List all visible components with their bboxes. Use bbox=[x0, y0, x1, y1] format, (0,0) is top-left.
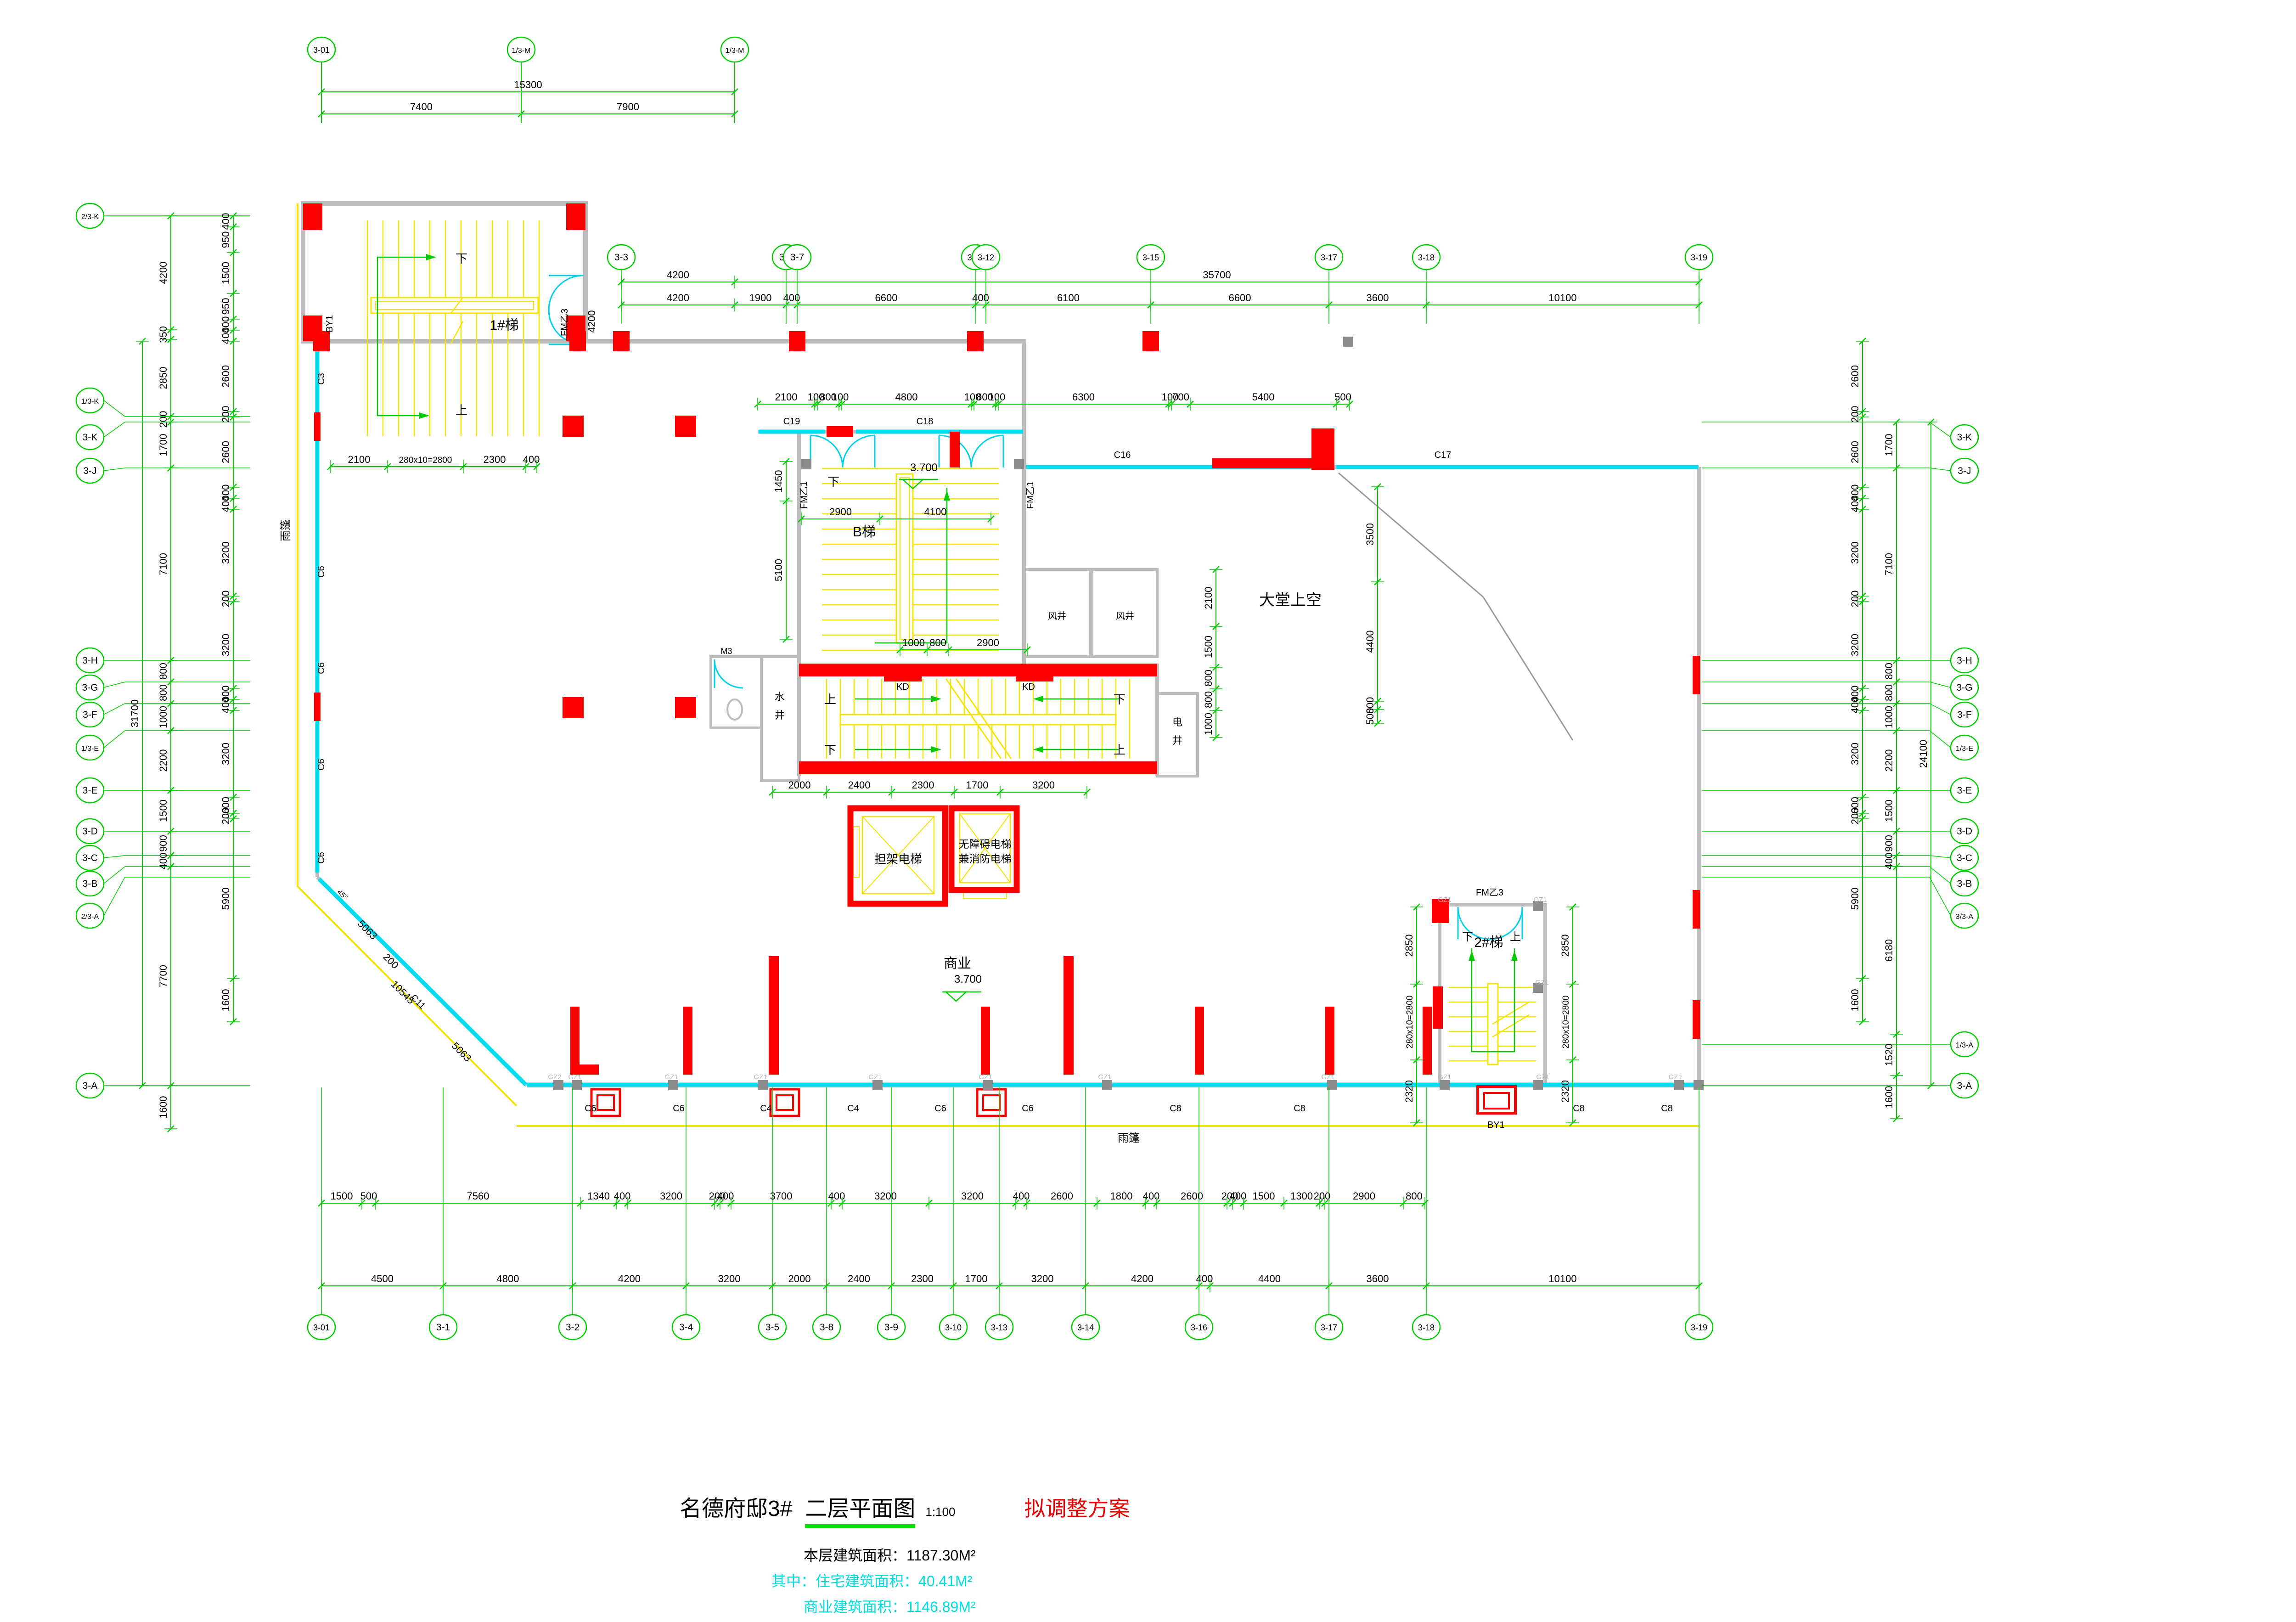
axis-line bbox=[1930, 422, 1951, 437]
red-column bbox=[1016, 666, 1053, 681]
dim-label: 200 bbox=[158, 411, 169, 428]
dim-label: 2300 bbox=[912, 779, 934, 791]
dim-label: 1000 bbox=[1883, 706, 1895, 728]
area-resi-value: 40.41M² bbox=[918, 1573, 972, 1589]
axis-bubble-label: 3-18 bbox=[1418, 1323, 1435, 1332]
dim-label: 6300 bbox=[1072, 391, 1095, 403]
plan-label: 水 bbox=[775, 691, 785, 703]
plan-label: C6 bbox=[1022, 1104, 1034, 1114]
dim-label: 2600 bbox=[1849, 441, 1861, 463]
red-column bbox=[683, 1007, 692, 1075]
plan-label: M3 bbox=[720, 647, 732, 656]
dim-label: 200 bbox=[220, 406, 231, 423]
red-column bbox=[314, 412, 321, 441]
door-m3 bbox=[715, 659, 743, 688]
dim-label: 1700 bbox=[1883, 434, 1895, 456]
floorplan-page: { "title_block": { "project": "名德府邸3#", … bbox=[0, 0, 2296, 1622]
plan-label: C6 bbox=[316, 759, 326, 771]
dim-label: 3200 bbox=[874, 1190, 897, 1202]
plan-label: GZ1 bbox=[979, 1073, 992, 1081]
dim-label: 400 bbox=[220, 697, 231, 714]
axis-bubble-label: 3/3-A bbox=[1956, 913, 1974, 921]
title-block: 名德府邸3#二层平面图1:100拟调整方案 本层建筑面积：1187.30M² 其… bbox=[680, 1490, 1322, 1616]
gray-column bbox=[801, 459, 811, 469]
red-column bbox=[769, 956, 779, 1075]
red-column bbox=[789, 331, 805, 351]
axis-line bbox=[1930, 704, 1951, 715]
dim-label: 800 bbox=[1406, 1190, 1423, 1202]
dim-label: 800 bbox=[929, 637, 946, 648]
red-column bbox=[981, 1007, 990, 1075]
drawing-title: 二层平面图 bbox=[805, 1490, 915, 1528]
dim-label: 7700 bbox=[158, 965, 169, 987]
dim-label: 3200 bbox=[220, 634, 231, 656]
dim-label: 200 bbox=[1849, 808, 1861, 825]
red-column bbox=[563, 416, 584, 437]
level-value: 3.700 bbox=[910, 462, 938, 474]
dim-label: 400 bbox=[1230, 1190, 1247, 1202]
dim-label: 4800 bbox=[497, 1273, 519, 1284]
plan-label: C19 bbox=[783, 417, 800, 427]
canopy-left-line bbox=[298, 203, 517, 1106]
axis-bubble-label: 3-17 bbox=[1321, 1323, 1337, 1332]
axis-line bbox=[104, 856, 125, 858]
direction-arrowhead bbox=[419, 412, 429, 419]
axis-bubble-label: 3-16 bbox=[1191, 1323, 1207, 1332]
dim-label: 4200 bbox=[618, 1273, 641, 1284]
dim-label: 5900 bbox=[220, 888, 231, 910]
axis-line bbox=[104, 400, 125, 417]
axis-line bbox=[104, 468, 125, 471]
axis-bubble-label: 3-E bbox=[1957, 785, 1972, 796]
axis-bubble-label: 3-E bbox=[83, 785, 98, 796]
red-column bbox=[884, 666, 922, 681]
dim-label: 3200 bbox=[1849, 541, 1861, 564]
dim-label-extra: 200 bbox=[381, 951, 401, 971]
plan-label: 下 bbox=[827, 475, 839, 489]
axis-line bbox=[1930, 867, 1951, 884]
dim-label: 5400 bbox=[1252, 391, 1275, 403]
axis-bubble-label: 3-14 bbox=[1077, 1323, 1094, 1332]
plan-label: GZ1 bbox=[1438, 896, 1451, 904]
dim-label: 200 bbox=[220, 808, 231, 825]
red-column bbox=[570, 1007, 580, 1075]
plan-label: 井 bbox=[775, 710, 785, 721]
dim-label: 800 bbox=[1203, 670, 1214, 687]
dim-label: 400 bbox=[614, 1190, 631, 1202]
axis-bubble-label: 3-F bbox=[83, 710, 97, 720]
dim-label: 950 bbox=[220, 231, 231, 248]
plan-label: BY1 bbox=[1487, 1120, 1505, 1130]
dim-label: 1600 bbox=[1883, 1086, 1895, 1109]
dim-label: 2600 bbox=[1849, 365, 1861, 388]
dim-label: 280x10=2800 bbox=[399, 456, 452, 465]
plan-label: 雨篷 bbox=[280, 519, 292, 541]
plan-label: 担架电梯 bbox=[874, 852, 922, 866]
bstair-rail bbox=[896, 474, 913, 643]
axis-bubble-label: 3-18 bbox=[1418, 253, 1435, 262]
dim-label: 15300 bbox=[514, 79, 542, 90]
axis-bubble-label: 1/3-K bbox=[81, 398, 99, 405]
gray-column bbox=[668, 1080, 678, 1090]
dim-label: 1000 bbox=[158, 706, 169, 728]
plan-label: 井 bbox=[1172, 735, 1182, 746]
red-column bbox=[799, 761, 1157, 774]
dim-label: 2400 bbox=[848, 1273, 870, 1284]
plan-label: C3 bbox=[316, 373, 326, 385]
axis-line bbox=[104, 731, 125, 748]
direction-arrowhead bbox=[1511, 951, 1518, 961]
direction-arrowhead bbox=[944, 490, 950, 501]
dim-label: 2850 bbox=[158, 367, 169, 389]
dim-label: 7100 bbox=[1883, 553, 1895, 575]
red-column bbox=[1693, 1000, 1700, 1039]
plan-label: 1#梯 bbox=[490, 318, 518, 333]
dim-label: 4200 bbox=[667, 269, 689, 281]
plan-label: C18 bbox=[917, 417, 934, 427]
axis-bubble-label: 3-D bbox=[82, 826, 98, 837]
plan-label: GZ1 bbox=[1098, 1073, 1111, 1081]
dim-label: 200 bbox=[1849, 406, 1861, 423]
dim-label: 24100 bbox=[1918, 740, 1929, 768]
plan-label: 下 bbox=[1462, 931, 1473, 943]
plan-label: FM乙3 bbox=[1476, 888, 1503, 898]
plan-label: 电 bbox=[1172, 716, 1182, 728]
plan-label: C4 bbox=[760, 1104, 772, 1114]
red-column bbox=[675, 697, 696, 718]
dim-label: 6100 bbox=[1057, 292, 1080, 304]
red-column bbox=[1325, 1007, 1334, 1075]
dim-label: 1340 bbox=[587, 1190, 610, 1202]
axis-bubble-label: 1/3-E bbox=[1956, 745, 1973, 753]
dim-label: 1000 bbox=[902, 637, 925, 648]
plan-label: KD bbox=[896, 682, 909, 692]
plan-label: 风井 bbox=[1116, 611, 1134, 621]
dim-label: 1500 bbox=[220, 262, 231, 284]
plan-label: GZ1 bbox=[1668, 1073, 1682, 1081]
red-column bbox=[1693, 890, 1700, 929]
plan-label: 下 bbox=[1114, 693, 1125, 706]
dim-label: 400 bbox=[783, 292, 800, 304]
dim-label: 10100 bbox=[1548, 292, 1576, 304]
gray-column bbox=[1102, 1080, 1112, 1090]
dim-label: 2600 bbox=[1051, 1190, 1073, 1202]
dim-label: 1600 bbox=[1849, 989, 1861, 1012]
area-sub-prefix: 其中： bbox=[771, 1573, 816, 1589]
dim-label: 4500 bbox=[371, 1273, 394, 1284]
dim-label: 800 bbox=[1883, 663, 1895, 680]
dim-label: 900 bbox=[1883, 835, 1895, 852]
axis-bubble-label: 3-2 bbox=[566, 1322, 580, 1333]
gray-column bbox=[1343, 337, 1353, 347]
plan-label: 上 bbox=[1114, 743, 1125, 757]
axis-bubble-label: 3-C bbox=[82, 853, 98, 863]
plan-label: 下 bbox=[824, 743, 836, 757]
plan-label: 商业 bbox=[944, 956, 971, 971]
red-column bbox=[1142, 331, 1159, 351]
red-column bbox=[1195, 1007, 1204, 1075]
project-name: 名德府邸3# bbox=[680, 1497, 792, 1521]
dim-label: 7100 bbox=[158, 553, 169, 575]
axis-bubble-label: 3-13 bbox=[991, 1323, 1007, 1332]
dim-label: 1450 bbox=[773, 470, 784, 493]
plan-label: C6 bbox=[316, 852, 326, 864]
dim-label: 2300 bbox=[911, 1273, 934, 1284]
dim-label: 400 bbox=[717, 1190, 734, 1202]
plan-label: C6 bbox=[585, 1104, 597, 1114]
window-diagonal-c11 bbox=[319, 879, 526, 1085]
dim-label: 3200 bbox=[1032, 779, 1055, 791]
plan-label: GZ1 bbox=[1321, 1073, 1334, 1081]
dim-label: 4200 bbox=[1131, 1273, 1154, 1284]
plan-label: 兼消防电梯 bbox=[959, 853, 1012, 865]
dim-label: 2850 bbox=[1559, 935, 1571, 957]
red-column bbox=[303, 315, 322, 341]
axis-bubble-label: 3-8 bbox=[820, 1322, 833, 1333]
plan-label: BY1 bbox=[325, 315, 335, 332]
dim-label: 400 bbox=[1196, 1273, 1213, 1284]
dim-label: 2600 bbox=[220, 365, 231, 388]
plan-label: C6 bbox=[316, 566, 326, 578]
red-column bbox=[1212, 458, 1313, 468]
axis-bubble-label: 2/3-K bbox=[81, 213, 99, 221]
dim-label: 4100 bbox=[924, 506, 947, 518]
axis-bubble-label: 3-K bbox=[83, 432, 98, 443]
dim-label: 2400 bbox=[848, 779, 871, 791]
elev1-cw bbox=[853, 827, 859, 877]
axis-bubble-label: 1/3-M bbox=[512, 47, 531, 55]
plan-label: GZ1 bbox=[1438, 1073, 1451, 1081]
axis-line bbox=[1930, 877, 1951, 916]
red-column bbox=[967, 331, 984, 351]
area-total-label: 本层建筑面积： bbox=[804, 1547, 906, 1564]
plan-label: GZ1 bbox=[664, 1073, 678, 1081]
dim-label: 2300 bbox=[484, 454, 506, 465]
level-value: 3.700 bbox=[954, 973, 982, 986]
dim-label: 900 bbox=[158, 835, 169, 852]
axis-bubble-label: 3-K bbox=[1957, 432, 1972, 443]
dim-label: 2100 bbox=[1203, 587, 1214, 609]
red-column bbox=[613, 331, 630, 351]
dim-label: 3500 bbox=[1364, 523, 1376, 546]
axis-bubble-label: 3-J bbox=[83, 466, 96, 476]
dim-label: 400 bbox=[1883, 853, 1895, 870]
plan-label: C8 bbox=[1170, 1104, 1182, 1114]
dim-label: 2320 bbox=[1403, 1080, 1415, 1103]
direction-arrowhead bbox=[426, 254, 436, 260]
axis-bubble-label: 3-1 bbox=[436, 1322, 450, 1333]
dim-label: 4400 bbox=[1364, 631, 1376, 653]
axis-bubble-label: 3-3 bbox=[614, 252, 628, 263]
dim-label: 280x10=2800 bbox=[1561, 996, 1571, 1049]
dim-label: 6180 bbox=[1883, 939, 1895, 962]
axis-line bbox=[104, 682, 125, 687]
dim-label: 4200 bbox=[158, 262, 169, 284]
dim-label: 400 bbox=[220, 327, 231, 344]
dim-label: 2600 bbox=[220, 441, 231, 463]
axis-bubble-label: 3-4 bbox=[679, 1322, 693, 1333]
dim-label: 950 bbox=[220, 298, 231, 315]
gray-column bbox=[1014, 459, 1024, 469]
dim-label: 3200 bbox=[718, 1273, 741, 1284]
dim-label: 400 bbox=[1013, 1190, 1030, 1202]
axis-bubble-label: 3-H bbox=[82, 655, 98, 666]
dim-label: 3200 bbox=[961, 1190, 984, 1202]
axis-line bbox=[1930, 731, 1951, 748]
axis-bubble-label: 3-10 bbox=[945, 1323, 962, 1332]
axis-bubble-label: 3-G bbox=[1956, 682, 1972, 693]
dim-label: 1500 bbox=[331, 1190, 353, 1202]
plan-label: C6 bbox=[316, 662, 326, 674]
dim-label: 500 bbox=[360, 1190, 377, 1202]
area-resi-row: 其中：住宅建筑面积：40.41M² bbox=[771, 1570, 1322, 1591]
dim-label: 3200 bbox=[220, 743, 231, 765]
axis-bubble-label: 3-G bbox=[82, 682, 98, 693]
plan-label: FM乙1 bbox=[799, 481, 809, 509]
dim-label: 35700 bbox=[1203, 269, 1231, 281]
axis-bubble-label: 3-19 bbox=[1691, 253, 1707, 262]
plan-label: GZ1 bbox=[868, 1073, 882, 1081]
dim-label: 2900 bbox=[977, 637, 999, 648]
axis-bubble-label: 3-C bbox=[1957, 853, 1972, 863]
plan-label: B梯 bbox=[853, 524, 876, 540]
dim-label: 200 bbox=[220, 591, 231, 608]
dim-label: 400 bbox=[1849, 496, 1861, 513]
dim-label: 400 bbox=[1143, 1190, 1160, 1202]
plan-label: C17 bbox=[1435, 450, 1452, 460]
dim-label: 100 bbox=[832, 391, 849, 403]
axis-line bbox=[1930, 468, 1951, 471]
axis-bubble-label: 3-H bbox=[1957, 655, 1972, 666]
plan-label: 无障碍电梯 bbox=[959, 838, 1012, 850]
dim-label: 6600 bbox=[1229, 292, 1251, 304]
gray-column bbox=[553, 1080, 563, 1090]
dim-label: 3200 bbox=[220, 541, 231, 564]
red-column bbox=[799, 664, 1157, 676]
revision-note: 拟调整方案 bbox=[1024, 1497, 1130, 1521]
plan-label: GZ1 bbox=[1536, 1073, 1549, 1081]
red-column bbox=[950, 432, 960, 467]
dim-label-extra: 4200 bbox=[586, 310, 597, 333]
area-total-value: 1187.30M² bbox=[906, 1547, 976, 1564]
plan-label: 上 bbox=[1510, 931, 1521, 943]
dim-label: 280x10=2800 bbox=[1405, 996, 1415, 1049]
area-comm-value: 1146.89M² bbox=[906, 1599, 976, 1615]
lobby-leader-2 bbox=[1483, 597, 1573, 740]
plan-label: C16 bbox=[1114, 450, 1131, 460]
dim-label: 3200 bbox=[1849, 634, 1861, 656]
stairs-layer bbox=[367, 220, 1536, 1064]
plan-label: C6 bbox=[673, 1104, 685, 1114]
axis-line bbox=[1930, 682, 1951, 687]
area-comm-label: 商业建筑面积： bbox=[804, 1599, 906, 1615]
direction-arrowhead bbox=[1033, 696, 1043, 702]
red-column bbox=[1311, 428, 1334, 470]
dim-label: 2850 bbox=[1403, 935, 1415, 957]
axis-bubble-label: 3-5 bbox=[765, 1322, 779, 1333]
plan-label: GZ2 bbox=[548, 1073, 561, 1081]
lobby-leader-1 bbox=[1339, 473, 1483, 597]
room-m3 bbox=[711, 657, 761, 728]
red-column bbox=[1693, 656, 1700, 694]
plan-label: GZ1 bbox=[754, 1073, 767, 1081]
dim-label: 350 bbox=[158, 326, 169, 343]
gray-column bbox=[758, 1080, 768, 1090]
axis-bubble-label: 3-B bbox=[1957, 879, 1972, 889]
dim-label: 5900 bbox=[1849, 888, 1861, 910]
dim-label: 1520 bbox=[1883, 1044, 1895, 1066]
dim-label: 400 bbox=[1849, 697, 1861, 714]
dim-label: 1600 bbox=[158, 1096, 169, 1119]
by1-bay-inner bbox=[1484, 1093, 1509, 1109]
plan-label: GZ1 bbox=[1535, 979, 1548, 986]
door-fmy1-left bbox=[810, 435, 875, 467]
axis-bubble-label: 3-F bbox=[1957, 710, 1972, 720]
doors-layer bbox=[549, 276, 1522, 939]
dim-label: 4200 bbox=[667, 292, 689, 304]
dim-label: 6600 bbox=[875, 292, 898, 304]
plan-label: FM乙1 bbox=[1025, 481, 1035, 509]
dim-label: 1500 bbox=[1253, 1190, 1275, 1202]
dim-label: 800 bbox=[1883, 684, 1895, 701]
axis-bubble-label: 1/3-M bbox=[726, 47, 744, 55]
red-column bbox=[303, 203, 322, 230]
axis-bubble-label: 3-B bbox=[83, 879, 98, 889]
axis-bubble-label: 3-9 bbox=[884, 1322, 898, 1333]
dim-label: 3200 bbox=[1031, 1273, 1054, 1284]
axis-bubble-label: 2/3-A bbox=[81, 913, 99, 921]
area-resi-label: 住宅建筑面积： bbox=[816, 1573, 918, 1589]
axis-bubble-label: 3-D bbox=[1957, 826, 1972, 837]
axis-bubble-label: 3-01 bbox=[313, 1323, 330, 1332]
dim-label: 400 bbox=[972, 292, 989, 304]
axis-bubble-label: 3-15 bbox=[1142, 253, 1159, 262]
plan-label: C6 bbox=[934, 1104, 946, 1114]
red-column bbox=[563, 697, 584, 718]
dim-label: 3700 bbox=[770, 1190, 793, 1202]
plan-label: C4 bbox=[847, 1104, 859, 1114]
axis-bubble-label: 1/3-E bbox=[81, 745, 99, 753]
dim-label: 1500 bbox=[1883, 800, 1895, 822]
plan-label: FM乙3 bbox=[560, 309, 570, 336]
red-column bbox=[1423, 1007, 1432, 1075]
red-column bbox=[566, 203, 585, 230]
area-comm-row: 商业建筑面积：1146.89M² bbox=[804, 1595, 1322, 1616]
dim-label: 2900 bbox=[829, 506, 852, 518]
dim-label: 1300 bbox=[1290, 1190, 1313, 1202]
toilet-fixture bbox=[727, 699, 742, 720]
dim-label: 800 bbox=[158, 684, 169, 701]
walls-layer bbox=[303, 203, 1699, 1086]
dim-label: 400 bbox=[828, 1190, 845, 1202]
axis-bubble-label: 3-19 bbox=[1691, 1323, 1707, 1332]
gray-column bbox=[983, 1080, 993, 1090]
dim-label: 2320 bbox=[1559, 1080, 1571, 1103]
dim-label: 1700 bbox=[966, 779, 989, 791]
door-fmy1-right bbox=[939, 435, 1003, 467]
dim-label: 2000 bbox=[788, 779, 811, 791]
dim-label: 2200 bbox=[1883, 749, 1895, 772]
dim-label: 400 bbox=[523, 454, 540, 465]
axis-bubble-label: 3-12 bbox=[978, 253, 994, 262]
area-total-row: 本层建筑面积：1187.30M² bbox=[804, 1544, 1322, 1565]
red-column bbox=[827, 426, 853, 437]
dim-label: 2900 bbox=[1353, 1190, 1375, 1202]
axis-line bbox=[104, 422, 125, 437]
level-triangle bbox=[946, 992, 966, 1001]
dim-label: 1600 bbox=[220, 989, 231, 1012]
bay-window-box bbox=[771, 1089, 799, 1116]
